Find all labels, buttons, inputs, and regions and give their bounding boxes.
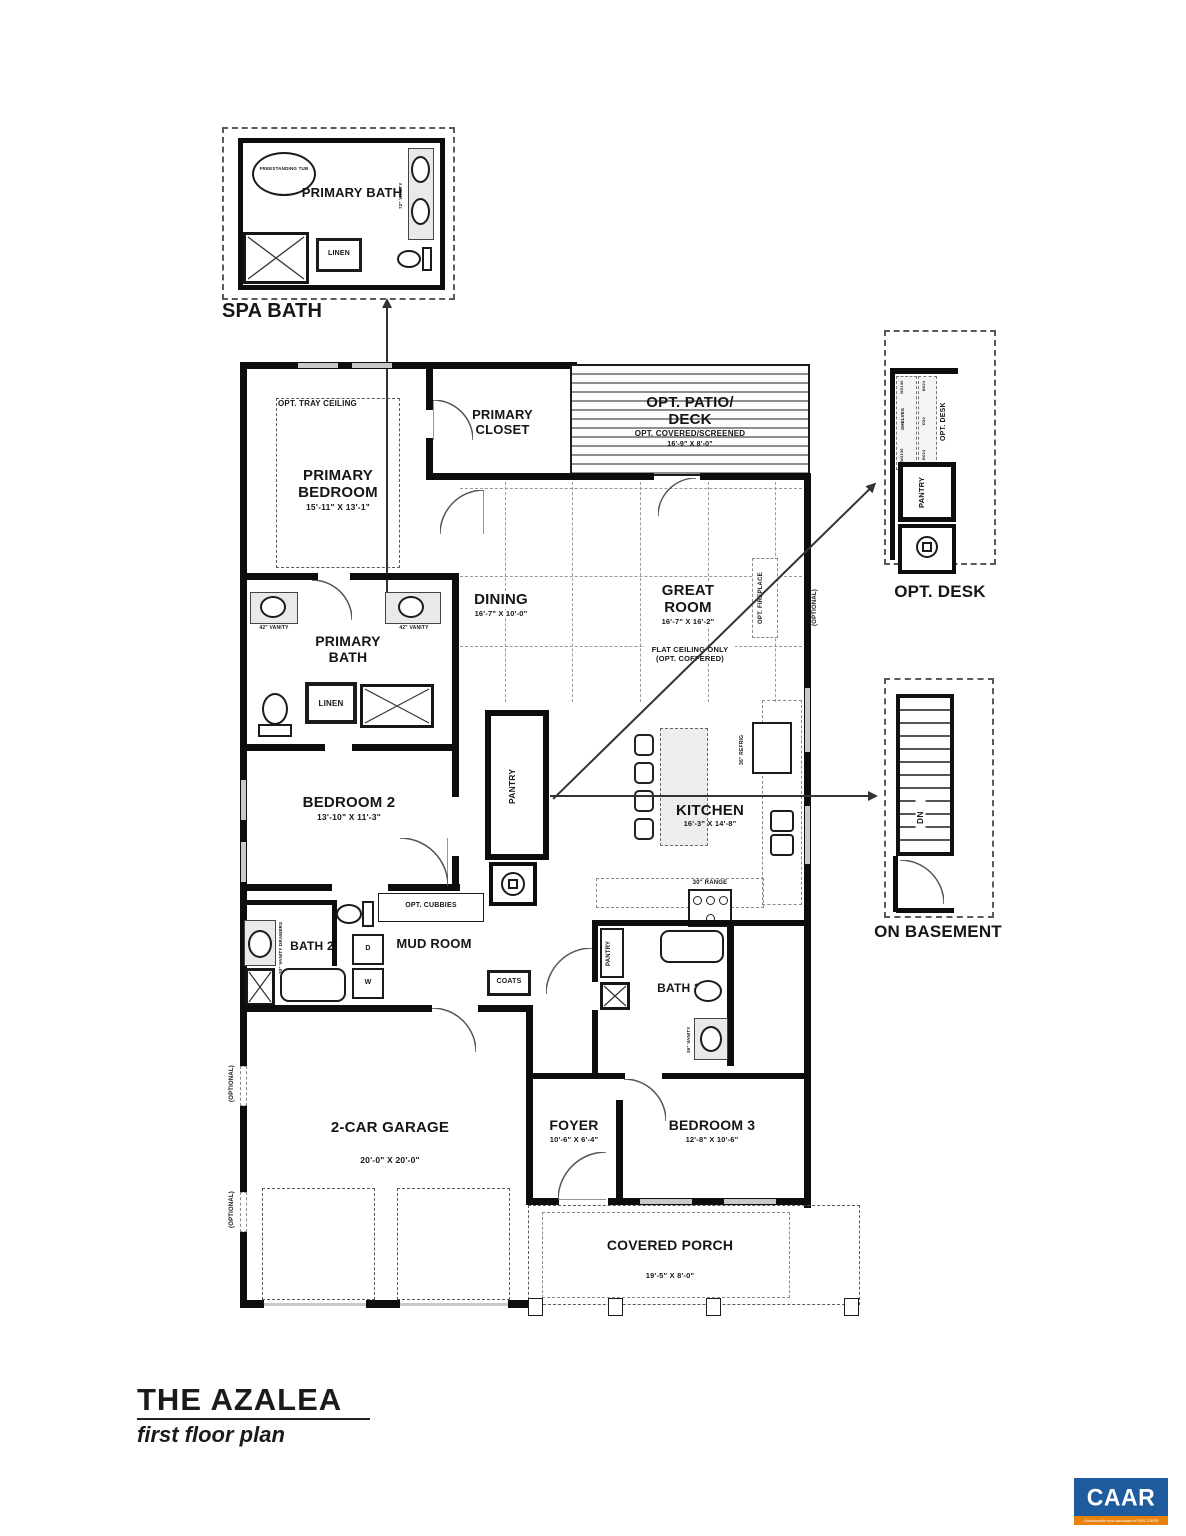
- bedroom2-dims: 13'-10" X 11'-3": [278, 813, 420, 823]
- wall-segment: [533, 1073, 625, 1079]
- wall-segment: [240, 884, 332, 891]
- basement-arrow-line: [550, 795, 872, 797]
- porch-dims: 19'-5" X 8'-0": [590, 1272, 750, 1280]
- wall-segment: [240, 900, 336, 905]
- plan-title-block: THE AZALEA first floor plan: [137, 1382, 370, 1448]
- wall-segment: [576, 473, 654, 480]
- toilet-tank: [258, 724, 292, 737]
- window: [241, 842, 246, 882]
- wall-segment: [452, 573, 459, 751]
- door-arc: [546, 948, 592, 994]
- floor-plan-page: { "page": {"title": "THE AZALEA", "subti…: [0, 0, 1186, 1536]
- wall-segment: [366, 1300, 400, 1308]
- door-arc: [624, 1079, 666, 1121]
- great-room-dims: 16'-7" X 16'-2": [650, 618, 726, 626]
- porch-post: [706, 1298, 721, 1316]
- wall-segment: [526, 1005, 533, 1205]
- wall-segment: [890, 368, 895, 560]
- vanity-42-label-left: 42" VANITY: [248, 626, 300, 632]
- bedroom2-label: BEDROOM 2: [278, 795, 420, 812]
- door-arc: [432, 1008, 476, 1052]
- closet-light-center: [508, 879, 518, 889]
- primary-bedroom-label: PRIMARY BEDROOM: [288, 468, 388, 502]
- door-arc: [433, 400, 473, 440]
- spa-primary-bath-label: PRIMARY BATH: [296, 186, 408, 201]
- patio-note: OPT. COVERED/SCREENED: [590, 430, 790, 439]
- ceiling-grid-line: [640, 482, 641, 702]
- sink-icon: [248, 930, 272, 958]
- optional-label-right: (OPTIONAL): [812, 578, 819, 638]
- pantry-label: PANTRY: [508, 738, 518, 834]
- kitchen-dims: 16'-3" X 14'-8": [640, 820, 780, 828]
- plan-title: THE AZALEA: [137, 1382, 370, 1420]
- toilet-tank: [362, 901, 374, 927]
- basement-arrow-head: [868, 791, 878, 801]
- ceiling-grid-line: [460, 576, 802, 577]
- desk-pantry-label: PANTRY: [918, 466, 926, 518]
- washer-label: W: [352, 979, 384, 987]
- garage-dims: 20'-0" X 20'-0": [330, 1156, 450, 1166]
- wall-segment: [533, 1198, 559, 1205]
- wall-segment: [592, 920, 598, 982]
- fixture-light-center: [922, 542, 932, 552]
- window: [241, 780, 246, 820]
- garage-door-1: [264, 1303, 366, 1306]
- wall-segment: [700, 473, 811, 480]
- window: [805, 688, 810, 752]
- opt-desk-title: OPT. DESK: [880, 582, 1000, 601]
- spa-toilet-tank: [422, 247, 432, 271]
- great-room-label: GREAT ROOM: [650, 583, 726, 617]
- wall-segment: [608, 1198, 811, 1205]
- burner-icon: [719, 896, 728, 905]
- spa-sink-icon: [411, 156, 430, 183]
- wall-segment: [350, 573, 456, 580]
- dryer-label: D: [352, 945, 384, 953]
- bar-stool-icon: [634, 734, 654, 756]
- on-basement-title: ON BASEMENT: [858, 922, 1018, 941]
- cabinet-label-b021-top: B021: [922, 378, 926, 394]
- cabinet-label-shelves: SHELVES: [900, 399, 905, 439]
- caar-logo-orange: Charlottesville Area Association of REAL…: [1074, 1516, 1168, 1525]
- desk-arrow-line: [552, 484, 874, 799]
- plan-subtitle: first floor plan: [137, 1422, 370, 1448]
- door-arc: [900, 860, 944, 904]
- burner-icon: [706, 896, 715, 905]
- bedroom3-dims: 12'-8" X 10'-6": [648, 1136, 776, 1144]
- cabinet-label-d30: D30: [922, 412, 926, 430]
- opt-desk-vertical-label: OPT. DESK: [940, 394, 948, 450]
- ceiling-grid-line: [572, 482, 573, 702]
- garage-door-2: [400, 1303, 508, 1306]
- spa-shower-icon: [243, 232, 309, 284]
- door-arc: [658, 478, 696, 516]
- refrigerator-icon: [752, 722, 792, 774]
- wall-segment: [592, 920, 805, 926]
- kitchen-sink-icon: [770, 810, 794, 832]
- caar-logo-blue: CAAR: [1074, 1478, 1168, 1516]
- door-arc: [312, 580, 352, 620]
- window: [724, 1199, 776, 1204]
- wall-segment: [896, 908, 954, 913]
- ceiling-grid-line: [460, 488, 802, 489]
- porch-label: COVERED PORCH: [590, 1238, 750, 1254]
- spa-sink-icon-2: [411, 198, 430, 225]
- spa-toilet-icon: [397, 250, 421, 268]
- kitchen-label: KITCHEN: [640, 803, 780, 820]
- primary-bath-shower-icon: [360, 684, 434, 728]
- range-label: 30" RANGE: [668, 880, 752, 887]
- sink-icon: [700, 1026, 722, 1052]
- optional-label-garage-1: (OPTIONAL): [229, 1060, 236, 1108]
- wall-segment: [592, 1010, 598, 1076]
- mud-room-label: MUD ROOM: [388, 937, 480, 952]
- window: [352, 363, 392, 368]
- wall-segment: [452, 751, 459, 797]
- optional-window-1: [240, 1066, 247, 1106]
- tray-ceiling-label: OPT. TRAY CEILING: [278, 400, 378, 409]
- porch-post: [528, 1298, 543, 1316]
- patio-dims: 16'-9" X 8'-0": [590, 441, 790, 449]
- toilet-icon: [336, 904, 362, 924]
- door-arc: [400, 838, 448, 886]
- porch-post: [844, 1298, 859, 1316]
- patio-name-1: OPT. PATIO/: [590, 395, 790, 412]
- bar-stool-icon: [634, 762, 654, 784]
- bath2-tub-icon: [280, 968, 346, 1002]
- bath2-shower-icon: [245, 968, 275, 1006]
- wall-segment: [240, 362, 247, 1308]
- desk-pantry-room: [898, 462, 956, 522]
- garage-bay-2: [397, 1188, 510, 1300]
- caar-logo: CAAR Charlottesville Area Association of…: [1074, 1478, 1168, 1525]
- wall-segment: [426, 473, 576, 480]
- wall-segment: [616, 1100, 623, 1204]
- wall-segment: [240, 573, 318, 580]
- freestanding-tub-label: FREESTANDING TUB: [256, 166, 312, 171]
- dining-dims: 16'-7" X 10'-0": [455, 610, 547, 618]
- optional-window-2: [240, 1192, 247, 1232]
- caar-logo-tagline: Charlottesville Area Association of REAL…: [1084, 1519, 1159, 1523]
- bedroom3-label: BEDROOM 3: [648, 1118, 776, 1134]
- refrig-label: 36" REFRIG: [740, 724, 746, 776]
- opt-cubbies-label: OPT. CUBBIES: [380, 902, 482, 910]
- foyer-dims: 10'-6" X 6'-4": [537, 1136, 611, 1144]
- wall-segment: [240, 744, 325, 751]
- wall-segment: [727, 920, 734, 1066]
- primary-bath-label: PRIMARY BATH: [300, 634, 396, 665]
- stairs-dn-label: DN: [916, 800, 926, 836]
- patio-name-2: DECK: [590, 412, 790, 429]
- primary-bedroom-dims: 15'-11" X 13'-1": [288, 503, 388, 513]
- bath2-label: BATH 2: [282, 940, 342, 953]
- desk-arrow-head: [865, 479, 879, 493]
- bath3-tub-icon: [660, 930, 724, 963]
- wall-segment: [890, 368, 958, 374]
- ceiling-grid-line: [460, 646, 802, 647]
- window: [640, 1199, 692, 1204]
- wall-segment: [240, 1300, 264, 1308]
- sink-icon: [260, 596, 286, 618]
- window: [805, 806, 810, 864]
- wall-segment: [240, 1005, 432, 1012]
- window: [298, 363, 338, 368]
- door-arc: [558, 1152, 606, 1200]
- burner-icon: [693, 896, 702, 905]
- wall-segment: [478, 1005, 533, 1012]
- door-arc: [440, 490, 484, 534]
- cabinet-label-w2130-top: W2130: [900, 377, 904, 397]
- dining-label: DINING: [455, 592, 547, 609]
- garage-bay-1: [262, 1188, 375, 1300]
- wall-segment: [893, 856, 898, 912]
- bath3-pantry-label: PANTRY: [606, 930, 613, 976]
- wall-segment: [426, 366, 433, 410]
- toilet-icon: [694, 980, 722, 1002]
- primary-bath-linen-label: LINEN: [308, 700, 354, 709]
- kitchen-sink-icon-2: [770, 834, 794, 856]
- garage-label: 2-CAR GARAGE: [330, 1120, 450, 1137]
- toilet-icon: [262, 693, 288, 725]
- porch-post: [608, 1298, 623, 1316]
- porch-inner: [542, 1212, 790, 1298]
- caar-logo-text: CAAR: [1087, 1483, 1155, 1511]
- wall-segment: [240, 362, 576, 369]
- spa-linen-label: LINEN: [318, 250, 360, 258]
- coats-label: COATS: [489, 978, 529, 986]
- wall-segment: [662, 1073, 808, 1079]
- bath3-shower-icon: [600, 982, 630, 1010]
- sink-icon: [398, 596, 424, 618]
- vanity-42-label-right: 42" VANITY: [388, 626, 440, 632]
- spa-vanity-label: 72" VANITY: [398, 168, 403, 224]
- spa-bath-title: SPA BATH: [222, 300, 422, 322]
- wall-segment: [352, 744, 458, 751]
- optional-label-garage-2: (OPTIONAL): [229, 1186, 236, 1234]
- spa-bath-arrow-head: [382, 298, 392, 308]
- foyer-label: FOYER: [537, 1118, 611, 1134]
- bath3-vanity-label: 36" VANITY: [686, 1018, 691, 1062]
